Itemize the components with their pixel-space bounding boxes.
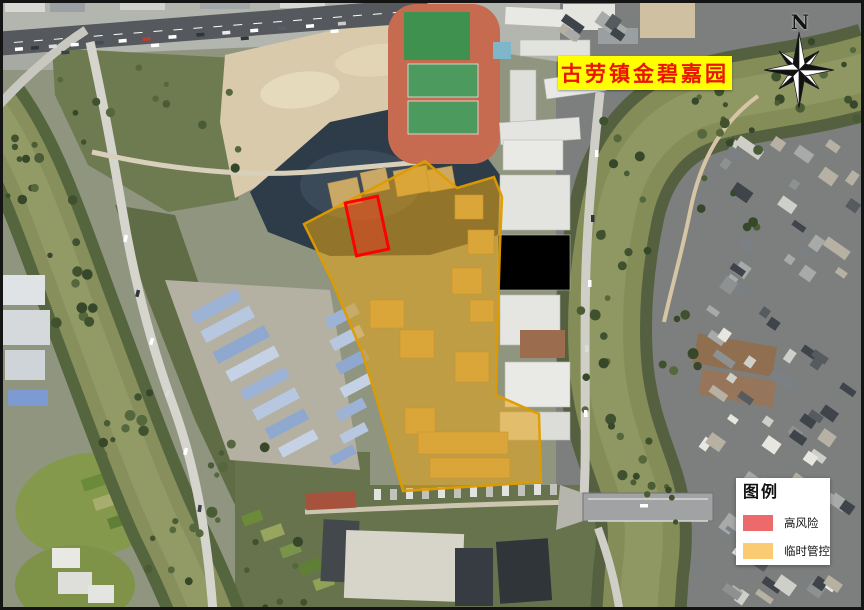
- map-title-banner: 古劳镇金碧嘉园: [558, 56, 732, 90]
- pool: [493, 42, 511, 59]
- satellite-map: [0, 0, 864, 610]
- high-risk-swatch: [743, 515, 773, 531]
- legend-item-high-risk: 高风险: [743, 515, 830, 531]
- concrete-pad: [344, 530, 464, 602]
- legend-item-label: 临时管控: [784, 543, 830, 559]
- legend-item-label: 高风险: [784, 515, 819, 531]
- basketball-courts: [408, 101, 478, 134]
- soccer-field: [404, 12, 470, 60]
- basketball-courts: [408, 64, 478, 97]
- red-roof-building: [306, 491, 357, 511]
- compass-rose: N: [762, 12, 838, 109]
- map-legend: 图例 高风险 临时管控: [736, 478, 830, 565]
- compass-rose-icon: [762, 31, 836, 109]
- map-frame: 古劳镇金碧嘉园 N: [0, 0, 864, 610]
- legend-item-temporary-control: 临时管控: [743, 543, 830, 559]
- north-label: N: [762, 12, 838, 32]
- east-site-buildings: [498, 140, 570, 440]
- map-title: 古劳镇金碧嘉园: [561, 58, 729, 88]
- legend-title: 图例: [743, 483, 830, 503]
- temporary-control-swatch: [743, 543, 773, 559]
